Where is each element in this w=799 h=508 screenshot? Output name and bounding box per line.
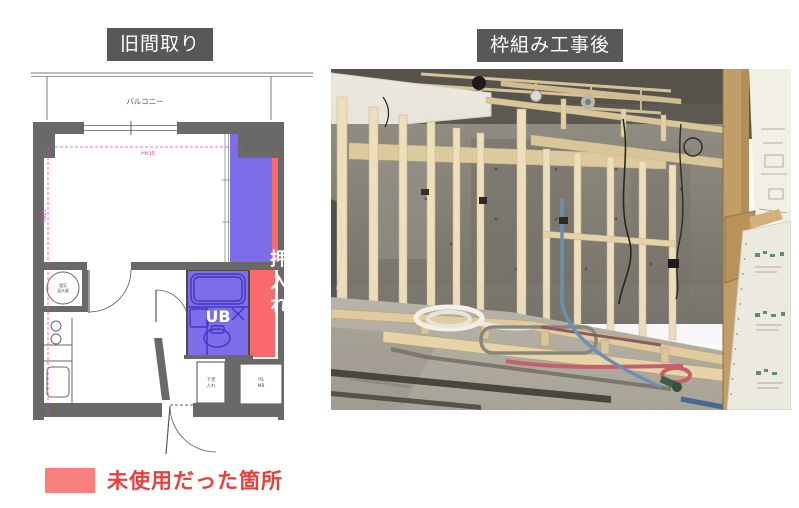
legend: 未使用だった箇所 (45, 465, 283, 495)
water-heater-label-2: 温水器 (57, 287, 69, 293)
balcony (31, 73, 313, 120)
page: 旧間取り 枠組み工事後 バルコニー (0, 0, 799, 508)
pipe-space-label-2: MB (258, 383, 265, 389)
floorplan: バルコニー (27, 68, 317, 463)
right-panel-title: 枠組み工事後 (477, 29, 623, 62)
burner (51, 334, 61, 344)
shoe-cabinet-label-2: 入れ (207, 383, 216, 389)
shoe-cabinet-label-1: 下足 (207, 377, 216, 383)
dimension-h-label: HH15 (141, 151, 155, 157)
construction-photo-drawing (331, 69, 791, 410)
legend-label: 未使用だった箇所 (107, 465, 283, 495)
legend-swatch (45, 468, 95, 493)
kitchen-sink (47, 367, 69, 397)
left-panel-title: 旧間取り (107, 28, 213, 61)
burner (51, 321, 61, 331)
closet-label: 押入れ (264, 231, 291, 335)
window (84, 121, 177, 135)
unit-bath-label: UB (205, 307, 230, 326)
pipe-space-label-1: PS (258, 377, 264, 383)
balcony-label: バルコニー (126, 97, 163, 106)
dimension-v-label: H915 (42, 209, 48, 222)
construction-photo (331, 69, 791, 410)
ceiling-vent (472, 76, 486, 90)
right-wall (723, 69, 791, 410)
